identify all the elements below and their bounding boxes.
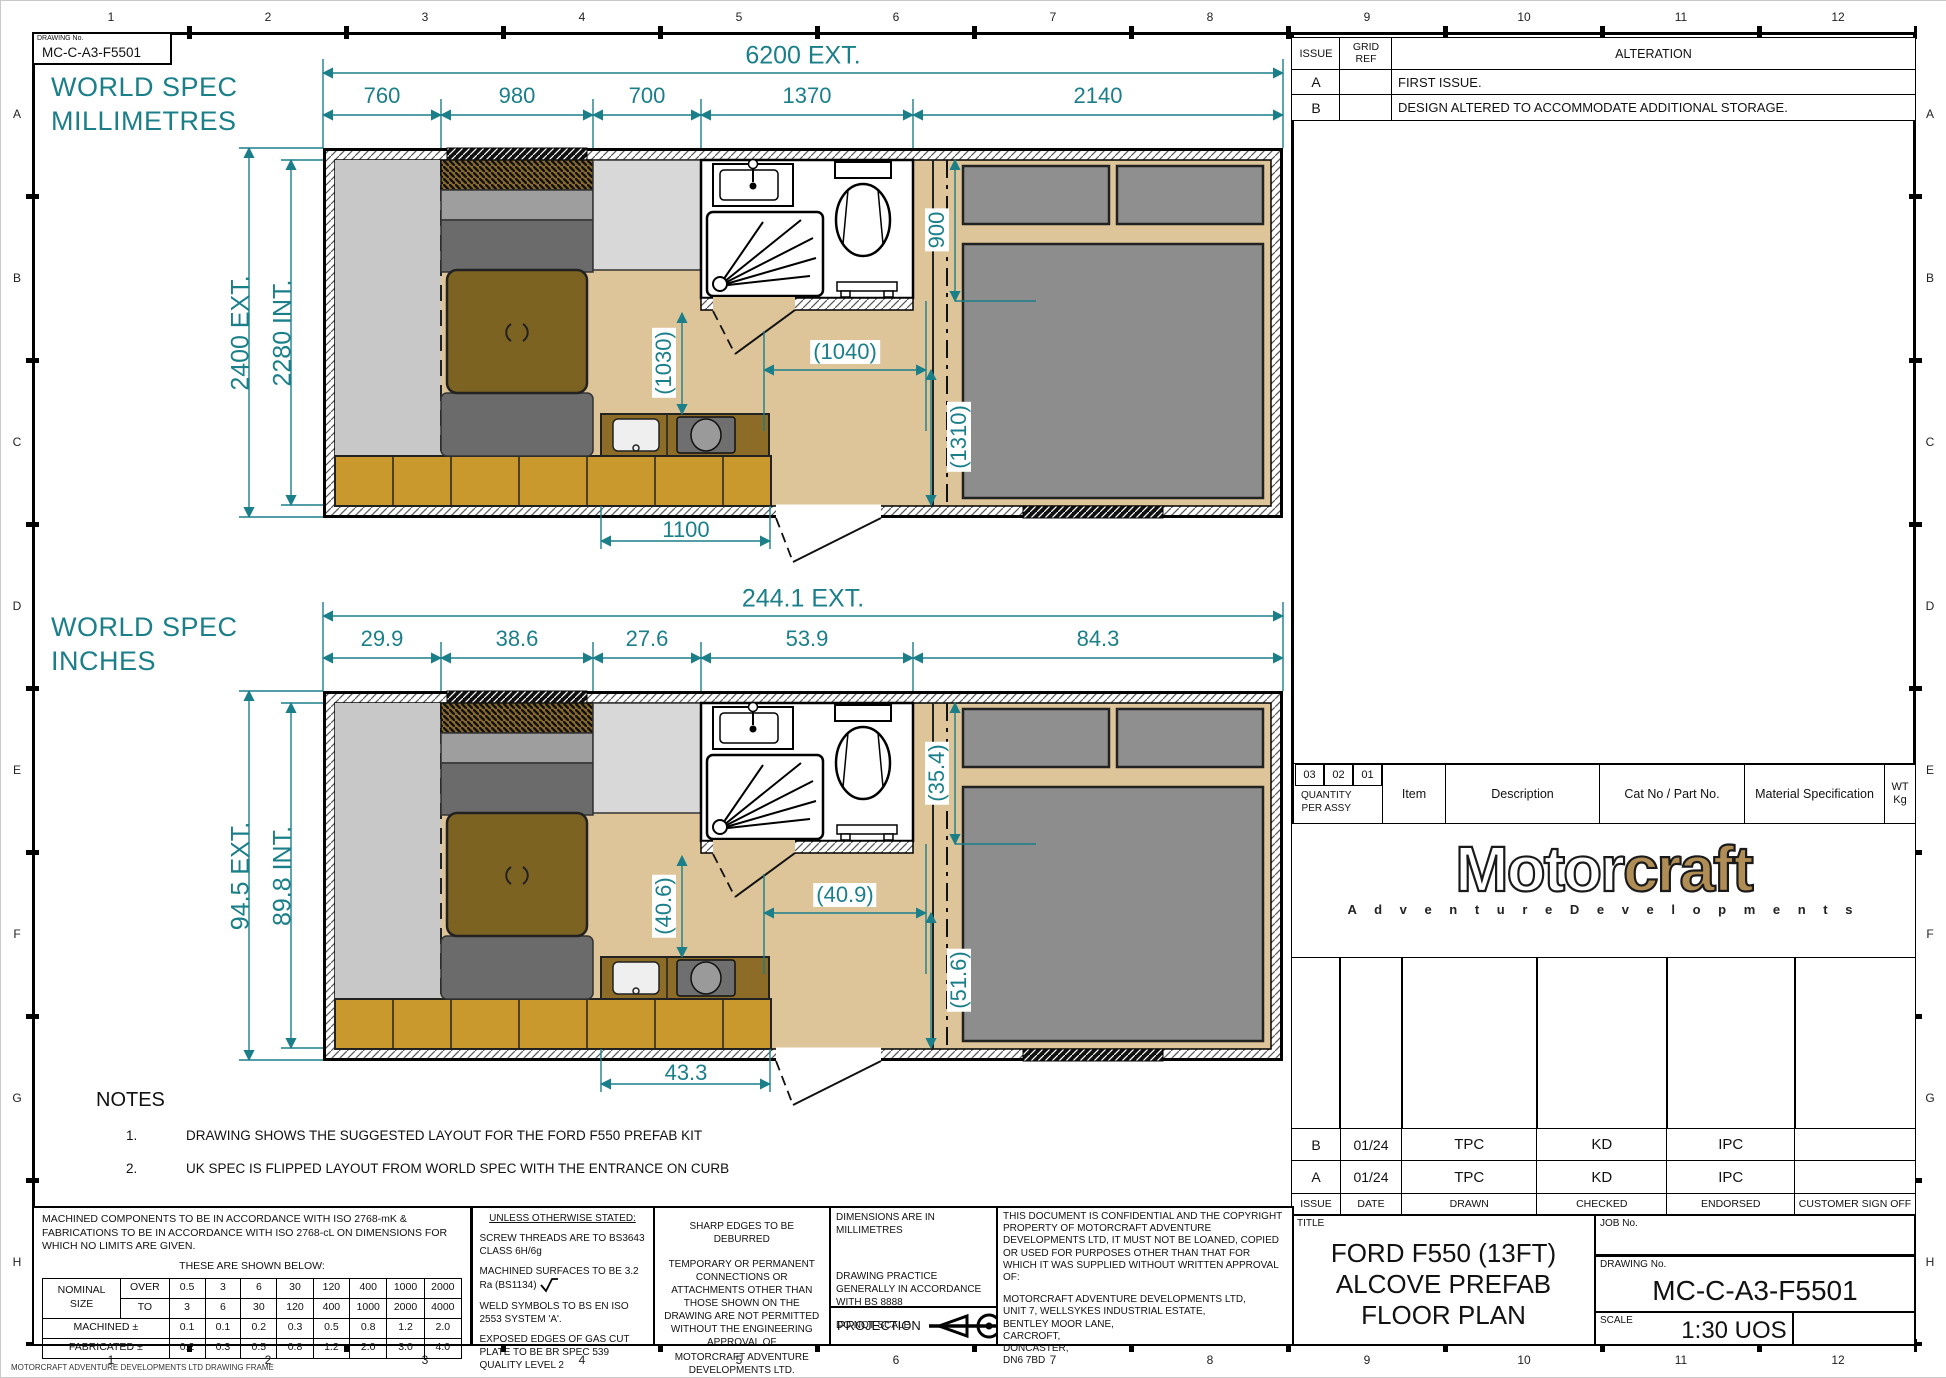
dim-overall: 244.1 EXT. [742, 587, 864, 612]
drawing-no-value: MC-C-A3-F5501 [42, 45, 141, 60]
scale-label: SCALE [1600, 1315, 1633, 1326]
edges-panel: SHARP EDGES TO BE DEBURRED TEMPORARY OR … [653, 1206, 831, 1346]
frame-footer-note: MOTORCRAFT ADVENTURE DEVELOPMENTS LTD DR… [11, 1363, 274, 1372]
parts-header-item: Item [1382, 764, 1446, 824]
history-header: ENDORSED [1666, 1193, 1796, 1216]
history-date: 01/24 [1340, 1160, 1403, 1194]
note-text: DRAWING SHOWS THE SUGGESTED LAYOUT FOR T… [186, 1128, 702, 1143]
ruler-col: 7 [1050, 10, 1057, 24]
ruler-col: 12 [1831, 10, 1844, 24]
ruler-row: G [12, 1091, 21, 1105]
parts-header-catno: Cat No / Part No. [1599, 764, 1745, 824]
ruler-row: H [1926, 1255, 1935, 1269]
history-checked: KD [1536, 1160, 1668, 1194]
ruler-col: 11 [1675, 10, 1687, 24]
history-issue: A [1291, 1160, 1341, 1194]
tolerance-table: NOMINAL SIZE OVER 0.5 3 6 30 120 400 100… [42, 1278, 462, 1359]
notes-title: NOTES [96, 1089, 165, 1112]
history-issue: B [1291, 1128, 1341, 1162]
qty-col-02: 02 [1324, 764, 1353, 786]
surface-finish-icon [539, 1278, 559, 1293]
nominal-size-label: NOMINAL SIZE [43, 1278, 121, 1318]
ruler-col: 10 [1517, 1353, 1530, 1367]
dim-ext-height: 94.5 EXT. [229, 822, 254, 930]
history-endorsed: IPC [1666, 1128, 1796, 1162]
dims-panel: DIMENSIONS ARE IN MILLIMETRES DRAWING PR… [829, 1206, 998, 1346]
history-header: ISSUE [1291, 1193, 1341, 1216]
drawing-no-cell: DRAWING No. MC-C-A3-F5501 [1594, 1255, 1916, 1314]
history-header: DRAWN [1401, 1193, 1538, 1216]
dim-segment: 84.3 [1077, 628, 1120, 650]
title-cell: TITLE FORD F550 (13FT) ALCOVE PREFAB FLO… [1291, 1214, 1596, 1346]
dim-int-height: 2280 INT. [271, 279, 296, 386]
dim-inner: (1040) [810, 340, 880, 364]
ruler-col: 12 [1831, 1353, 1844, 1367]
ruler-col: 3 [422, 10, 429, 24]
parts-header-wt: WT Kg [1884, 764, 1916, 824]
ruler-row: A [1926, 107, 1934, 121]
dim-inner: (40.9) [813, 883, 876, 907]
alteration-row-text: FIRST ISSUE. [1391, 69, 1916, 96]
history-customer [1794, 1128, 1916, 1162]
ruler-col: 9 [1364, 10, 1371, 24]
ruler-col: 4 [579, 10, 586, 24]
projection-label: PROJECTION [837, 1318, 921, 1335]
dim-inner: (1310) [947, 402, 971, 472]
ruler-col: 11 [1675, 1353, 1687, 1367]
alteration-row-issue: A [1291, 69, 1341, 96]
floor-plan-inches [323, 691, 1283, 1111]
drawing-no-label: DRAWING No. [1600, 1259, 1666, 1270]
alteration-gridref-header: GRID REF [1339, 37, 1393, 70]
parts-empty-band [1291, 957, 1916, 1129]
job-no-cell: JOB No. [1594, 1214, 1916, 1256]
fabricated-label: FABRICATED ± [43, 1338, 170, 1358]
ruler-col: 2 [265, 10, 272, 24]
qty-col-01: 01 [1353, 764, 1382, 786]
note-text: UK SPEC IS FLIPPED LAYOUT FROM WORLD SPE… [186, 1161, 729, 1176]
motorcraft-logo: Motorcraft A d v e n t u r e D e v e l o… [1292, 832, 1915, 917]
ruler-col: 6 [893, 1353, 900, 1367]
dim-overall: 6200 EXT. [745, 44, 860, 69]
drawing-title: FORD F550 (13FT) ALCOVE PREFAB FLOOR PLA… [1293, 1238, 1594, 1332]
history-header: CUSTOMER SIGN OFF [1794, 1193, 1916, 1216]
confidential-panel: THIS DOCUMENT IS CONFIDENTIAL AND THE CO… [996, 1206, 1294, 1346]
dim-bottom: 1100 [662, 519, 709, 541]
history-date: 01/24 [1340, 1128, 1403, 1162]
dim-segment: 38.6 [496, 628, 539, 650]
title-label: TITLE [1297, 1218, 1324, 1229]
floor-plan-millimetres [323, 148, 1283, 568]
ruler-col: 8 [1207, 10, 1214, 24]
ruler-col: 6 [893, 10, 900, 24]
ruler-row: E [1926, 763, 1934, 777]
logo-cell: Motorcraft A d v e n t u r e D e v e l o… [1291, 823, 1916, 959]
dim-inner: (40.6) [652, 874, 676, 937]
projection-row: PROJECTION [831, 1306, 996, 1344]
uos-panel: UNLESS OTHERWISE STATED: SCREW THREADS A… [471, 1206, 655, 1346]
ruler-row: A [13, 107, 21, 121]
dim-segment: 29.9 [361, 628, 404, 650]
drawing-no-box: DRAWING No. MC-C-A3-F5501 [32, 32, 172, 65]
alteration-header: ALTERATION [1391, 37, 1916, 70]
dim-inner: 900 [925, 209, 949, 252]
dim-inner: (1030) [652, 328, 676, 398]
note-number: 2. [126, 1161, 137, 1176]
uos-title: UNLESS OTHERWISE STATED: [480, 1212, 646, 1225]
drawing-sheet: 1 2 3 4 5 6 7 8 9 10 11 12 1 2 3 4 5 6 7… [0, 0, 1946, 1378]
history-header: DATE [1340, 1193, 1403, 1216]
parts-header-material: Material Specification [1744, 764, 1886, 824]
dim-ext-height: 2400 EXT. [229, 275, 254, 390]
plan-mm-spec-label: WORLD SPECMILLIMETRES [51, 71, 238, 139]
scale-cell: SCALE 1:30 UOS [1594, 1311, 1794, 1346]
parts-header-description: Description [1445, 764, 1601, 824]
dim-segment: 2140 [1074, 85, 1123, 107]
qty-col-03: 03 [1295, 764, 1324, 786]
first-angle-projection-icon [927, 1312, 996, 1340]
history-drawn: TPC [1401, 1128, 1538, 1162]
ruler-row: F [13, 927, 20, 941]
qty-label: QUANTITY PER ASSY [1301, 789, 1352, 815]
history-endorsed: IPC [1666, 1160, 1796, 1194]
ruler-row: B [1926, 271, 1934, 285]
ruler-row: B [13, 271, 21, 285]
ruler-row: C [13, 435, 22, 449]
history-customer [1794, 1160, 1916, 1194]
dim-segment: 27.6 [626, 628, 669, 650]
ruler-row: H [13, 1255, 22, 1269]
ruler-row: D [1926, 599, 1935, 613]
ruler-row: D [13, 599, 22, 613]
tolerance-panel: MACHINED COMPONENTS TO BE IN ACCORDANCE … [32, 1206, 472, 1346]
history-checked: KD [1536, 1128, 1668, 1162]
ruler-col: 1 [108, 10, 115, 24]
alteration-row-gridref [1339, 69, 1393, 96]
history-header: CHECKED [1536, 1193, 1668, 1216]
scale-blank-cell [1792, 1311, 1917, 1346]
ruler-col: 10 [1517, 10, 1530, 24]
ruler-col: 5 [736, 10, 743, 24]
dim-int-height: 89.8 INT. [271, 826, 296, 926]
alteration-row-issue: B [1291, 94, 1341, 121]
dim-bottom: 43.3 [665, 1062, 708, 1084]
dim-segment: 980 [499, 85, 536, 107]
plan-in-spec-label: WORLD SPECINCHES [51, 611, 238, 679]
tolerance-paragraph: MACHINED COMPONENTS TO BE IN ACCORDANCE … [42, 1213, 462, 1254]
drawing-no-value: MC-C-A3-F5501 [1596, 1275, 1914, 1307]
logo-subtitle: A d v e n t u r e D e v e l o p m e n t … [1292, 902, 1915, 917]
tolerance-subtitle: THESE ARE SHOWN BELOW: [42, 1260, 462, 1274]
alteration-row-text: DESIGN ALTERED TO ACCOMMODATE ADDITIONAL… [1391, 94, 1916, 121]
alteration-issue-header: ISSUE [1291, 37, 1341, 70]
dim-segment: 53.9 [786, 628, 829, 650]
job-no-label: JOB No. [1600, 1218, 1638, 1229]
left-ticks [26, 194, 39, 1346]
alteration-row-gridref [1339, 94, 1393, 121]
ruler-row: F [1926, 927, 1933, 941]
dim-segment: 760 [364, 85, 401, 107]
ruler-col: 9 [1364, 1353, 1371, 1367]
machined-label: MACHINED ± [43, 1318, 170, 1338]
dim-segment: 700 [629, 85, 666, 107]
dim-segment: 1370 [783, 85, 832, 107]
note-number: 1. [126, 1128, 137, 1143]
ruler-row: C [1926, 435, 1935, 449]
history-drawn: TPC [1401, 1160, 1538, 1194]
drawing-no-label: DRAWING No. [37, 35, 83, 42]
dim-inner: (35.4) [925, 741, 949, 804]
ruler-row: G [1925, 1091, 1934, 1105]
ruler-row: E [13, 763, 21, 777]
dim-inner: (51.6) [947, 948, 971, 1011]
